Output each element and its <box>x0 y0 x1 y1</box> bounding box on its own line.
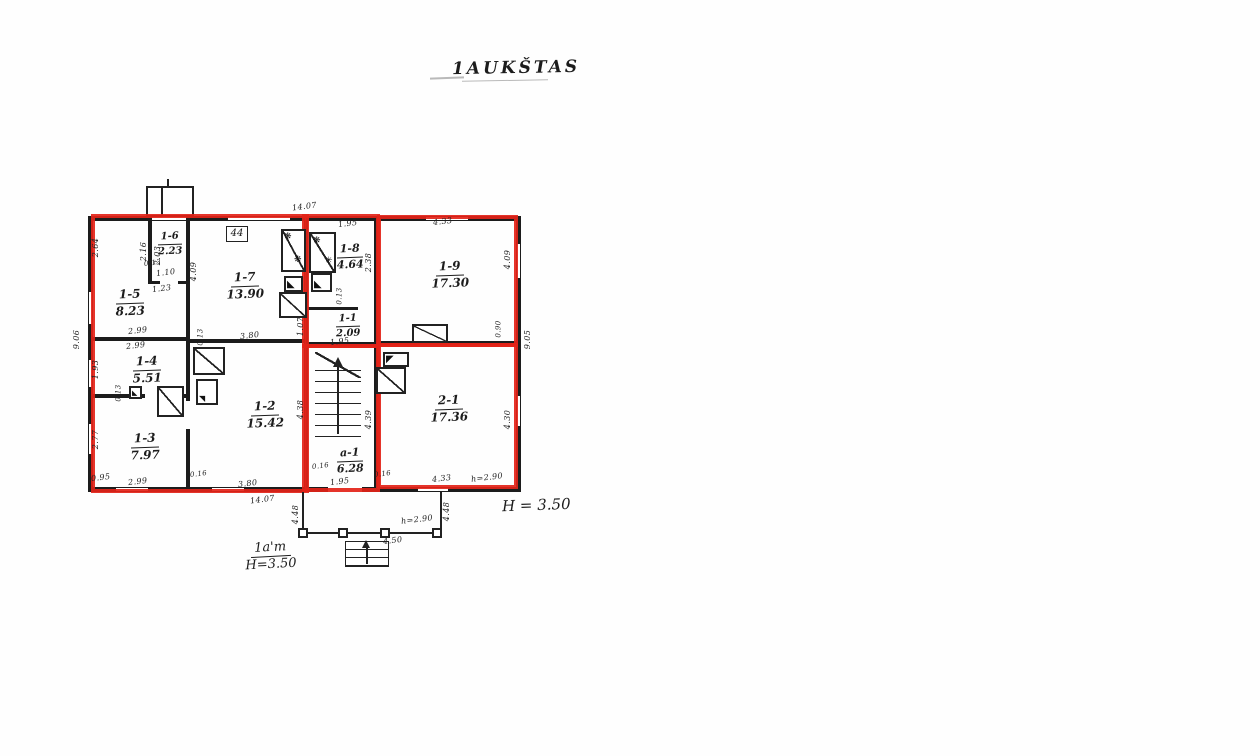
dimension-label: 4.09 <box>503 250 512 269</box>
room-label-1-3: 1-3 7.97 <box>115 431 174 464</box>
room-area: 15.42 <box>233 415 297 432</box>
floor-plan-page: 1AUKŠTAS ❋ ❋ ❋ ✳ <box>0 0 1260 756</box>
chimney <box>146 186 194 217</box>
room-name: 1-7 <box>231 271 259 288</box>
dimension-label: 1.93 <box>91 360 100 379</box>
dimension-label: 4.50 <box>383 535 403 546</box>
niche-icon <box>376 367 406 394</box>
height-note: H = 3.50 <box>502 495 571 515</box>
floor-note-bottom: H=3.50 <box>245 556 297 574</box>
steps-arrow-line <box>366 546 368 564</box>
dimension-label: 0.90 <box>495 320 503 337</box>
porch-post <box>338 528 348 538</box>
room-area: 5.51 <box>118 370 176 387</box>
plan-reference-box: 44 <box>226 226 248 242</box>
dimension-label: 4.30 <box>503 410 512 429</box>
floor-note-top: 1a'm <box>250 539 291 558</box>
floor-note: 1a'm H=3.50 <box>244 539 297 574</box>
porch-post <box>432 528 442 538</box>
niche-icon <box>193 347 225 375</box>
flue-icon: ◤ <box>383 352 409 367</box>
dimension-label: 4.48 <box>442 502 451 521</box>
dimension-label: 1.07 <box>296 317 305 336</box>
dimension-label: 2.38 <box>364 253 373 272</box>
flue-icon: ◥ <box>196 379 218 405</box>
dimension-label: 14.07 <box>250 494 276 506</box>
flue-icon: ◣ <box>129 386 142 399</box>
room-name: 1-1 <box>336 313 361 327</box>
door-leaf-icon <box>157 386 184 417</box>
room-name: 1-5 <box>116 288 144 305</box>
title-underline <box>462 79 548 82</box>
flue-icon: ◣ <box>311 273 332 292</box>
room-label-1-7: 1-7 13.90 <box>213 270 276 303</box>
room-label-1-5: 1-5 8.23 <box>103 287 156 319</box>
room-label-1-2: 1-2 15.42 <box>232 399 297 432</box>
stair-arrow-head-icon <box>333 357 343 367</box>
scan-smudge <box>430 76 464 79</box>
dimension-label: 2.77 <box>91 430 100 449</box>
room-name: a-1 <box>337 447 363 463</box>
room-label-1-4: 1-4 5.51 <box>117 354 176 387</box>
niche-icon <box>279 292 307 318</box>
room-area: 8.23 <box>104 303 156 320</box>
room-name: 1-6 <box>158 231 183 245</box>
room-label-a-1: a-1 6.28 <box>322 446 379 476</box>
stair-arrow-line <box>337 366 339 434</box>
room-label-1-9: 1-9 17.30 <box>419 259 480 292</box>
dimension-label: 4.09 <box>189 262 198 281</box>
room-name: 2-1 <box>435 394 463 411</box>
flue-icon: ◣ <box>284 276 303 292</box>
chimney-tick <box>167 179 169 187</box>
steps-arrow-head-icon <box>362 540 370 548</box>
dimension-label: 2.16 <box>139 242 148 261</box>
room-area: 7.97 <box>116 447 174 464</box>
chimney-divider <box>161 188 163 215</box>
room-name: 1-9 <box>436 260 464 277</box>
dimension-label: 4.39 <box>364 410 373 429</box>
dimension-label: 0.13 <box>336 287 344 304</box>
page-title: 1AUKŠTAS <box>452 57 580 79</box>
room-area: 6.28 <box>322 461 378 477</box>
dimension-label: 9.05 <box>523 330 532 349</box>
room-name: 1-4 <box>133 355 161 372</box>
room-name: 1-8 <box>337 243 363 259</box>
dimension-label: 14.07 <box>292 201 318 213</box>
dimension-label: 4.38 <box>296 400 305 419</box>
porch-edge <box>302 532 442 534</box>
dimension-label: h=2.90 <box>401 513 434 526</box>
dimension-label: 2.64 <box>91 238 100 257</box>
room-name: 1-2 <box>251 400 279 417</box>
room-label-2-1: 2-1 17.36 <box>417 393 480 426</box>
dimension-label: 9.06 <box>72 330 81 349</box>
room-area: 17.36 <box>418 409 480 426</box>
dimension-label: 4.48 <box>291 505 300 524</box>
dimension-label: 0.13 <box>197 328 205 345</box>
room-name: 1-3 <box>131 432 159 449</box>
room-area: 13.90 <box>214 286 276 303</box>
room-area: 17.30 <box>420 275 480 292</box>
stove-icon: ❋ ❋ <box>281 229 306 272</box>
porch-post <box>298 528 308 538</box>
niche-icon <box>412 324 448 343</box>
dimension-label: 0.13 <box>115 384 123 401</box>
